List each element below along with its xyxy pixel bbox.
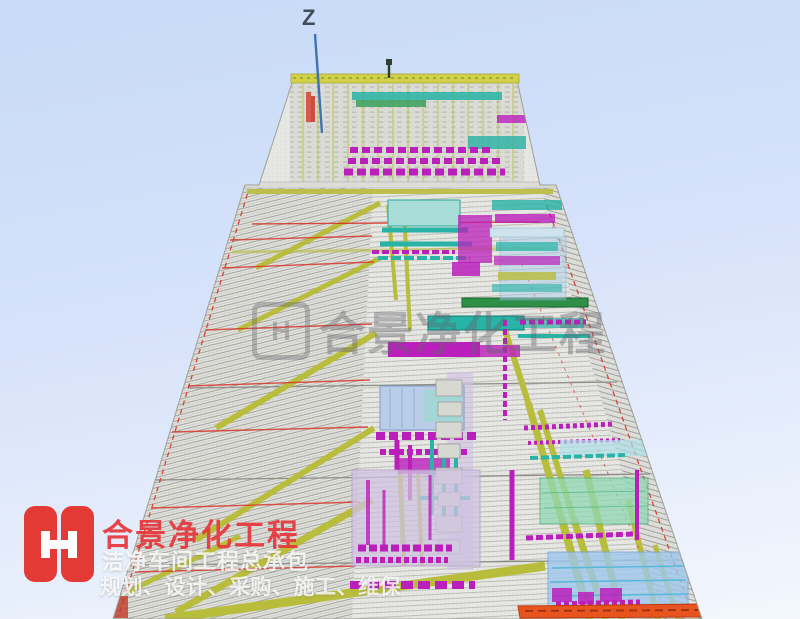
- model-viewport: Z H 合景净化工程 合景净化工程 洁净车间工程总承包 规划、设计、采购、施工、…: [0, 0, 800, 619]
- company-logo-icon: [24, 506, 94, 582]
- top-railing-beam: [291, 74, 519, 83]
- z-axis-label: Z: [302, 5, 316, 31]
- company-tagline-2: 规划、设计、采购、施工、维保: [100, 571, 401, 601]
- orange-band: [518, 604, 702, 618]
